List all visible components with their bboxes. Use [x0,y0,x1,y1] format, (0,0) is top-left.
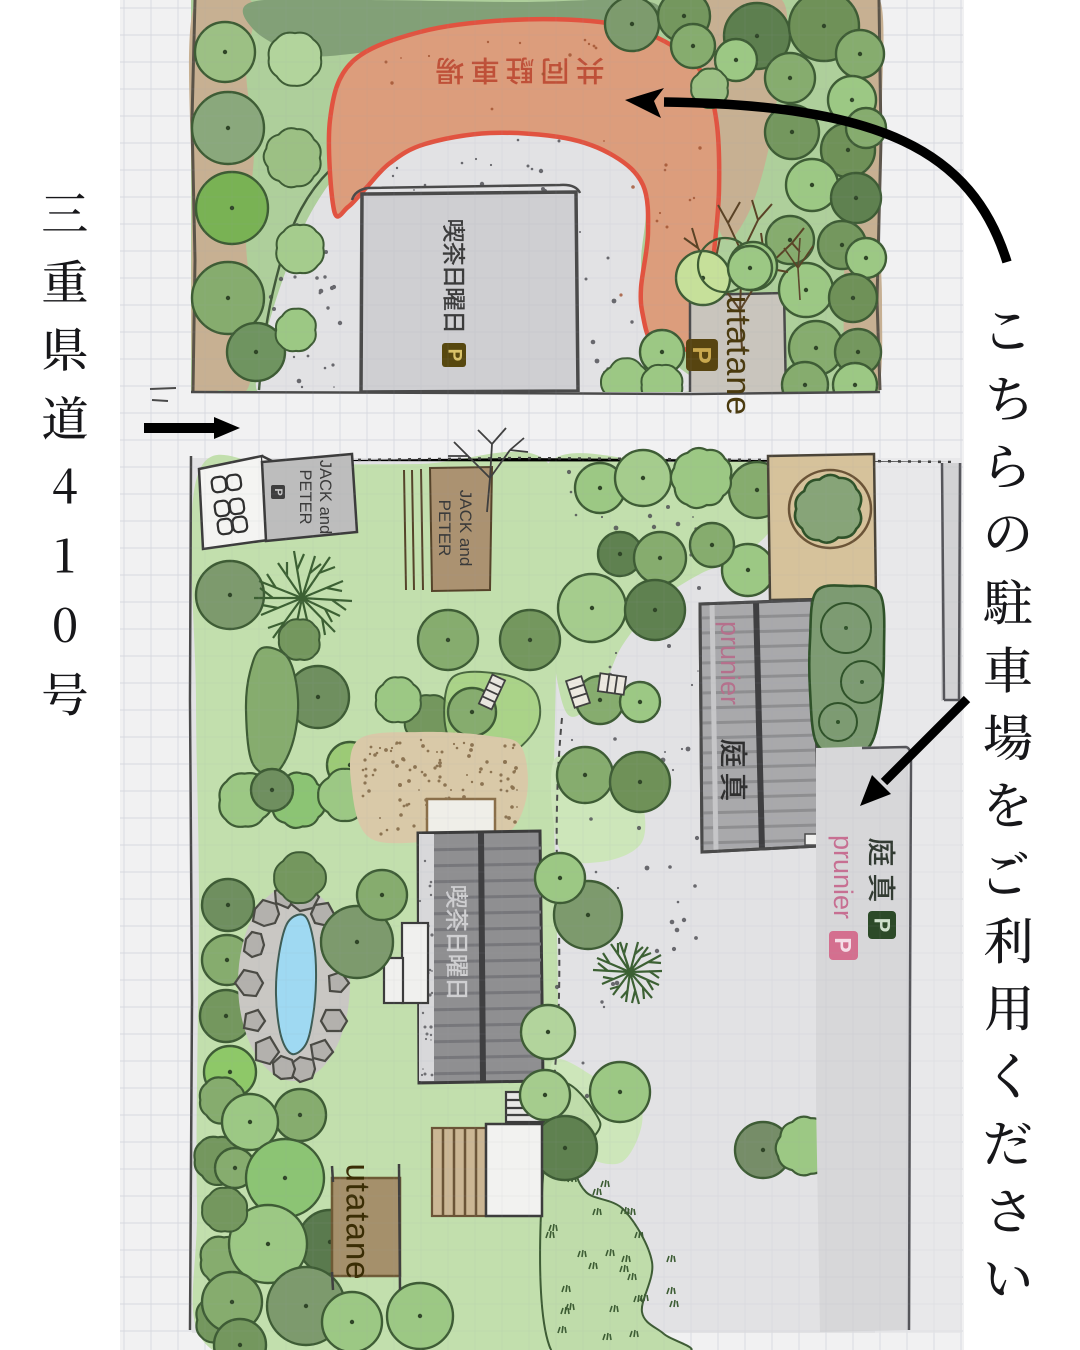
svg-text:utatane: utatane [719,296,757,416]
svg-text:P: P [830,937,856,952]
svg-text:P: P [272,488,284,495]
svg-text:prunier: prunier [828,835,858,919]
svg-text:utatane: utatane [340,1163,377,1280]
svg-text:JACK and: JACK and [316,460,334,534]
svg-text:PETER: PETER [296,469,314,524]
svg-text:JACK and: JACK and [456,490,475,567]
svg-text:P: P [870,918,895,933]
svg-text:P: P [687,346,717,363]
svg-text:P: P [444,349,465,362]
svg-text:prunier: prunier [715,621,745,705]
